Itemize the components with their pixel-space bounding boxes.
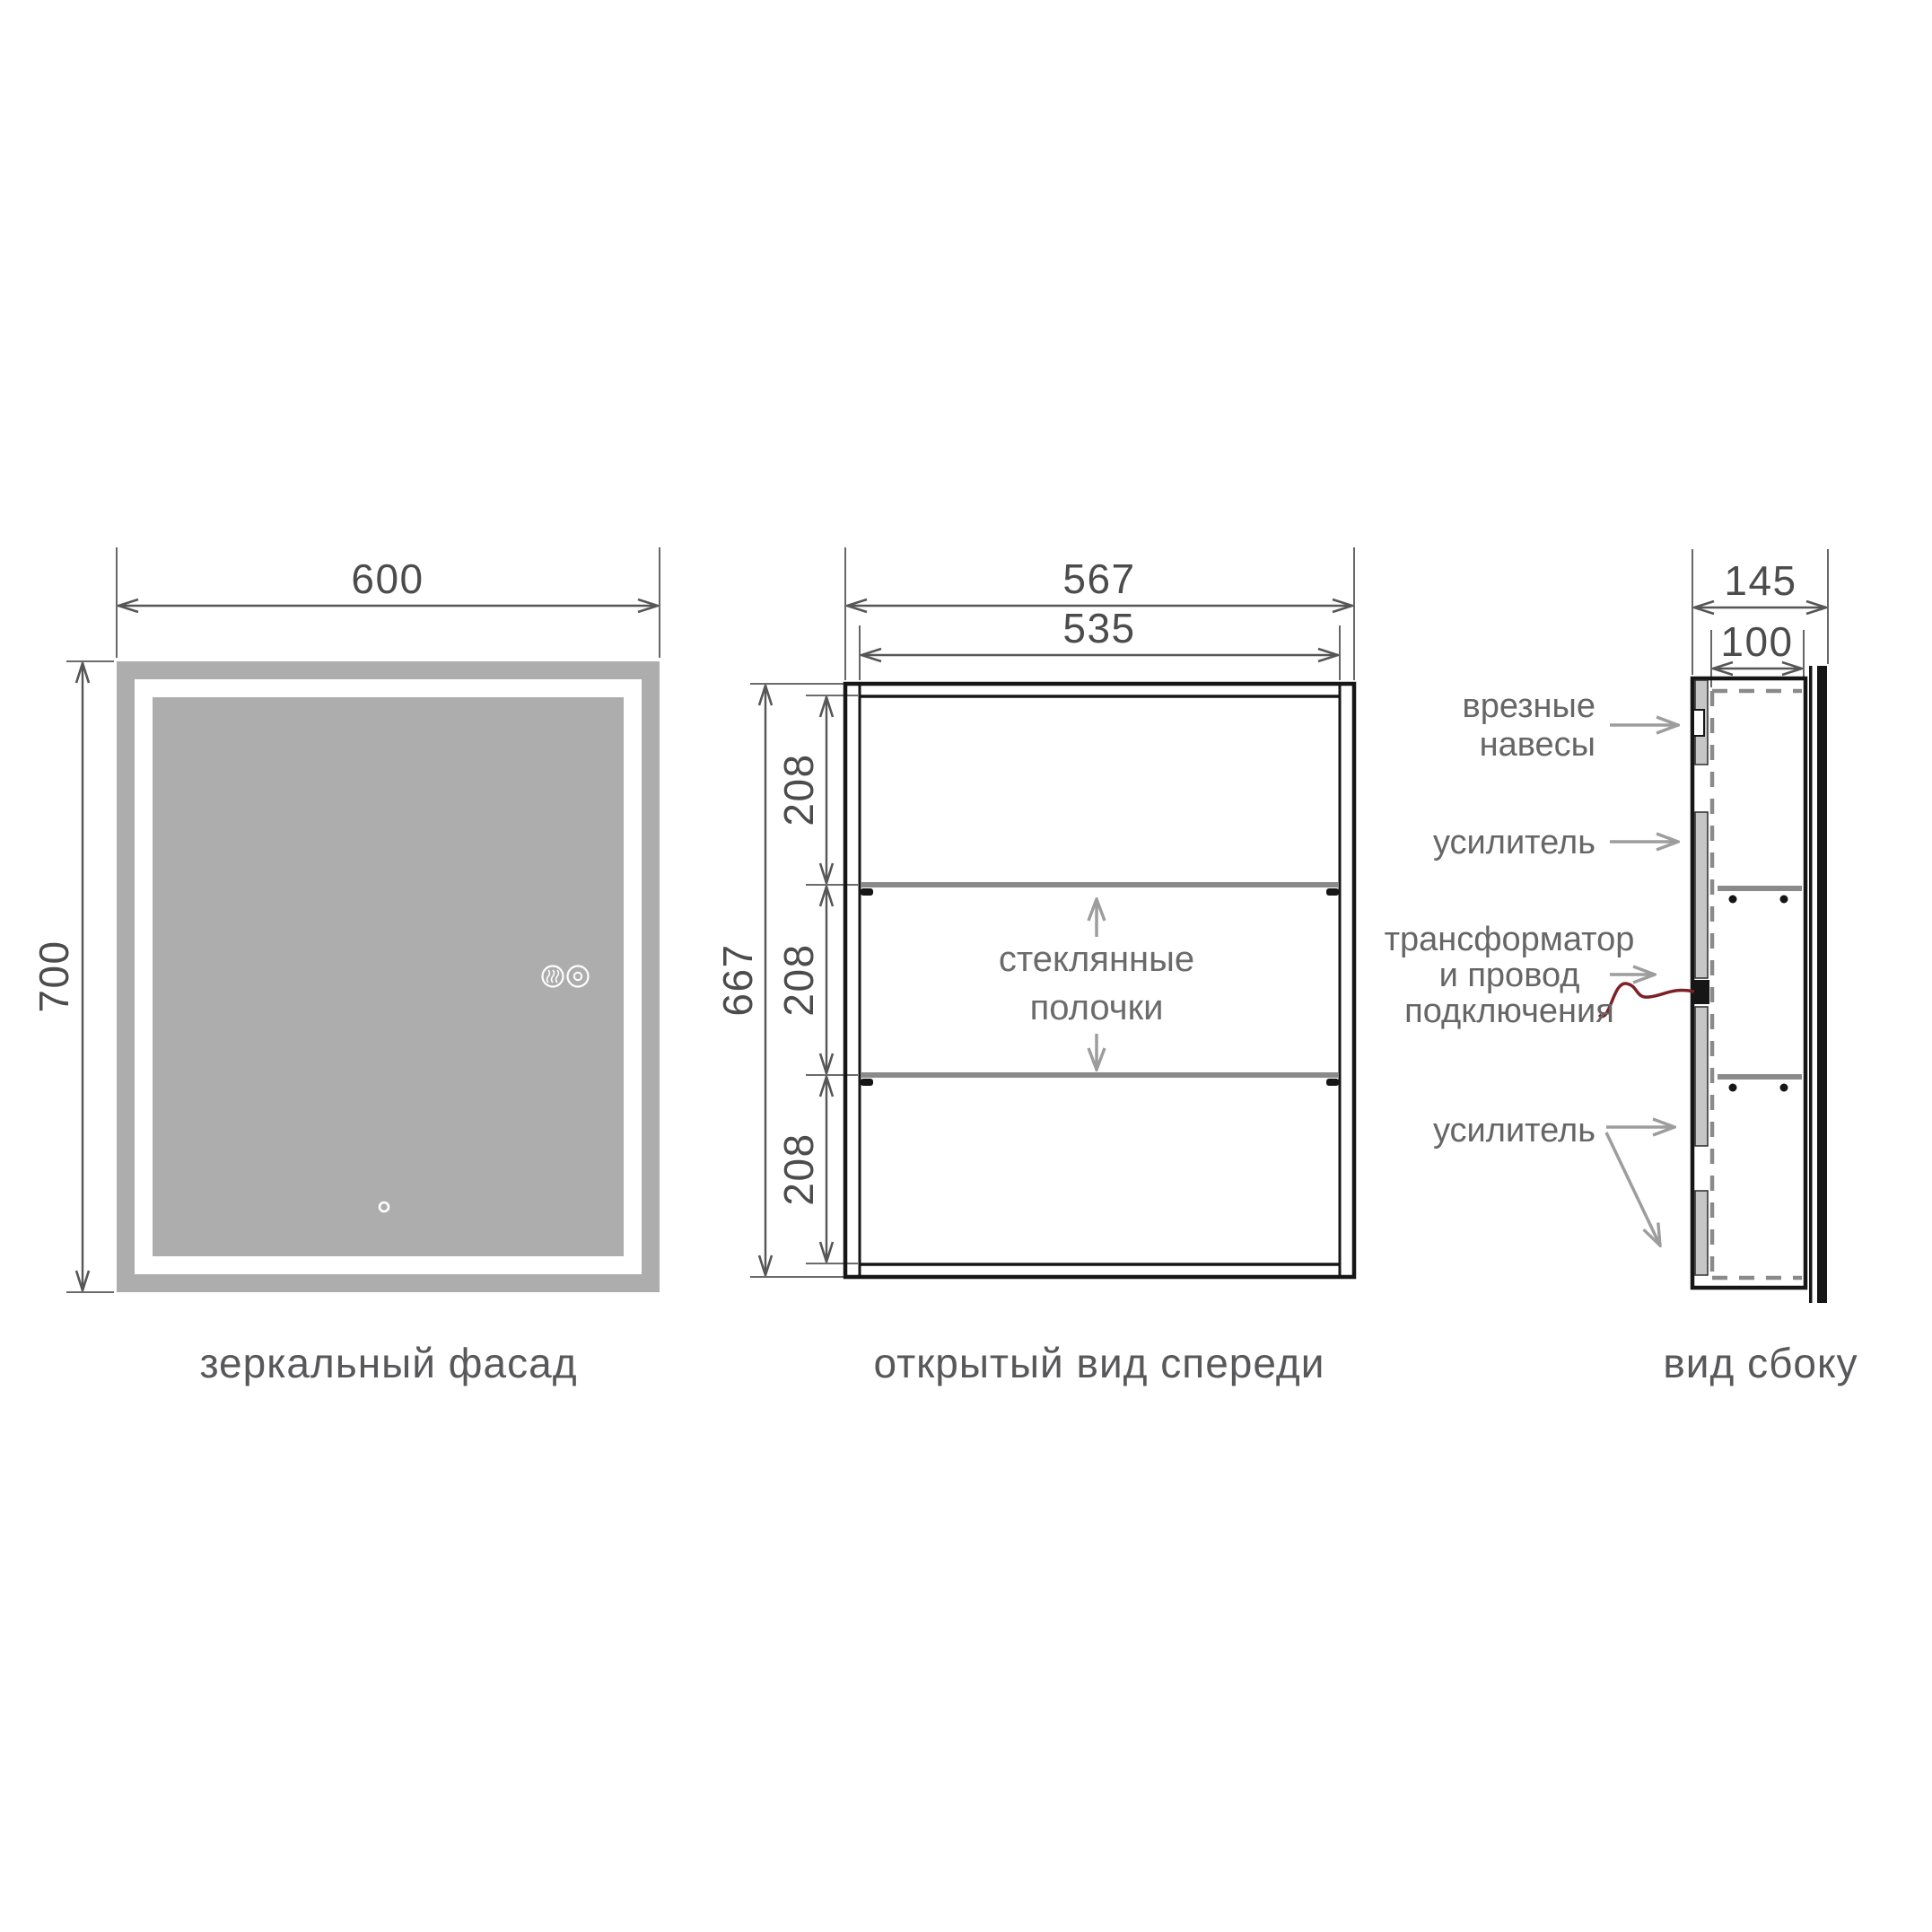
stiffener-top-label: усилитель (1433, 824, 1595, 861)
stiffener-bottom-label: усилитель (1433, 1112, 1595, 1150)
shelf-pin (1729, 896, 1737, 904)
caption-mirror-front: зеркальный фасад (199, 1340, 577, 1386)
mirror-front-view: 600 700 зеркальный фасад (31, 547, 660, 1386)
shelf-pin (1780, 1084, 1788, 1092)
dim-cabinet-height: 667 (714, 943, 761, 1016)
shelf-pin (1729, 1084, 1737, 1092)
dim-cabinet-outer-width: 567 (1062, 555, 1135, 602)
dim-section-2: 208 (775, 943, 822, 1016)
mirror-panel (117, 661, 660, 1292)
hinges-label-line1: врезные (1463, 687, 1595, 725)
mirror-door (1817, 666, 1827, 1303)
dim-mirror-height: 700 (31, 940, 77, 1012)
dim-cabinet-inner-width: 535 (1062, 605, 1135, 651)
transformer-label-line1: трансформатор (1385, 921, 1635, 958)
shelf-pin (861, 1079, 873, 1086)
cabinet-drawing: 600 700 зеркальный фасад 567 (0, 0, 1932, 1932)
shelf-pin (1780, 896, 1788, 904)
dim-depth-total: 145 (1724, 557, 1796, 604)
hidden-edge-dashed (1712, 691, 1802, 1278)
shelf-pin (861, 888, 873, 896)
shelf-pin (1326, 1079, 1339, 1086)
dim-section-3: 208 (775, 1132, 822, 1205)
transformer-label-line2: и провод (1439, 957, 1580, 994)
stiffener-plates (1695, 680, 1708, 1275)
transformer-box (1694, 980, 1709, 1004)
stiffener-plate (1695, 812, 1708, 978)
caption-side-view: вид сбоку (1663, 1340, 1858, 1386)
shelf-pin (1326, 888, 1339, 896)
stiffener-plate (1695, 1007, 1708, 1146)
dim-section-1: 208 (775, 753, 822, 826)
stiffener-plate (1695, 1191, 1708, 1275)
hinges-label-line2: навесы (1480, 726, 1595, 764)
dim-mirror-width: 600 (351, 555, 424, 602)
caption-open-front: открытый вид спереди (874, 1340, 1325, 1386)
transformer-label-line3: подключения (1404, 992, 1614, 1030)
technical-drawing-page: 600 700 зеркальный фасад 567 (0, 0, 1932, 1932)
hinge-cup (1693, 710, 1704, 736)
side-view: 145 100 (1385, 549, 1858, 1386)
glass-shelves-label-line1: стеклянные (999, 940, 1194, 979)
cabinet-outline (845, 684, 1354, 1277)
open-front-view: 567 535 667 208 208 208 (714, 547, 1354, 1386)
dim-depth-body: 100 (1720, 618, 1793, 665)
glass-shelves-label-line2: полочки (1030, 988, 1164, 1027)
stiffener-bottom-pointer-2 (1606, 1132, 1660, 1246)
mirror-door-inner-line (1809, 666, 1813, 1303)
